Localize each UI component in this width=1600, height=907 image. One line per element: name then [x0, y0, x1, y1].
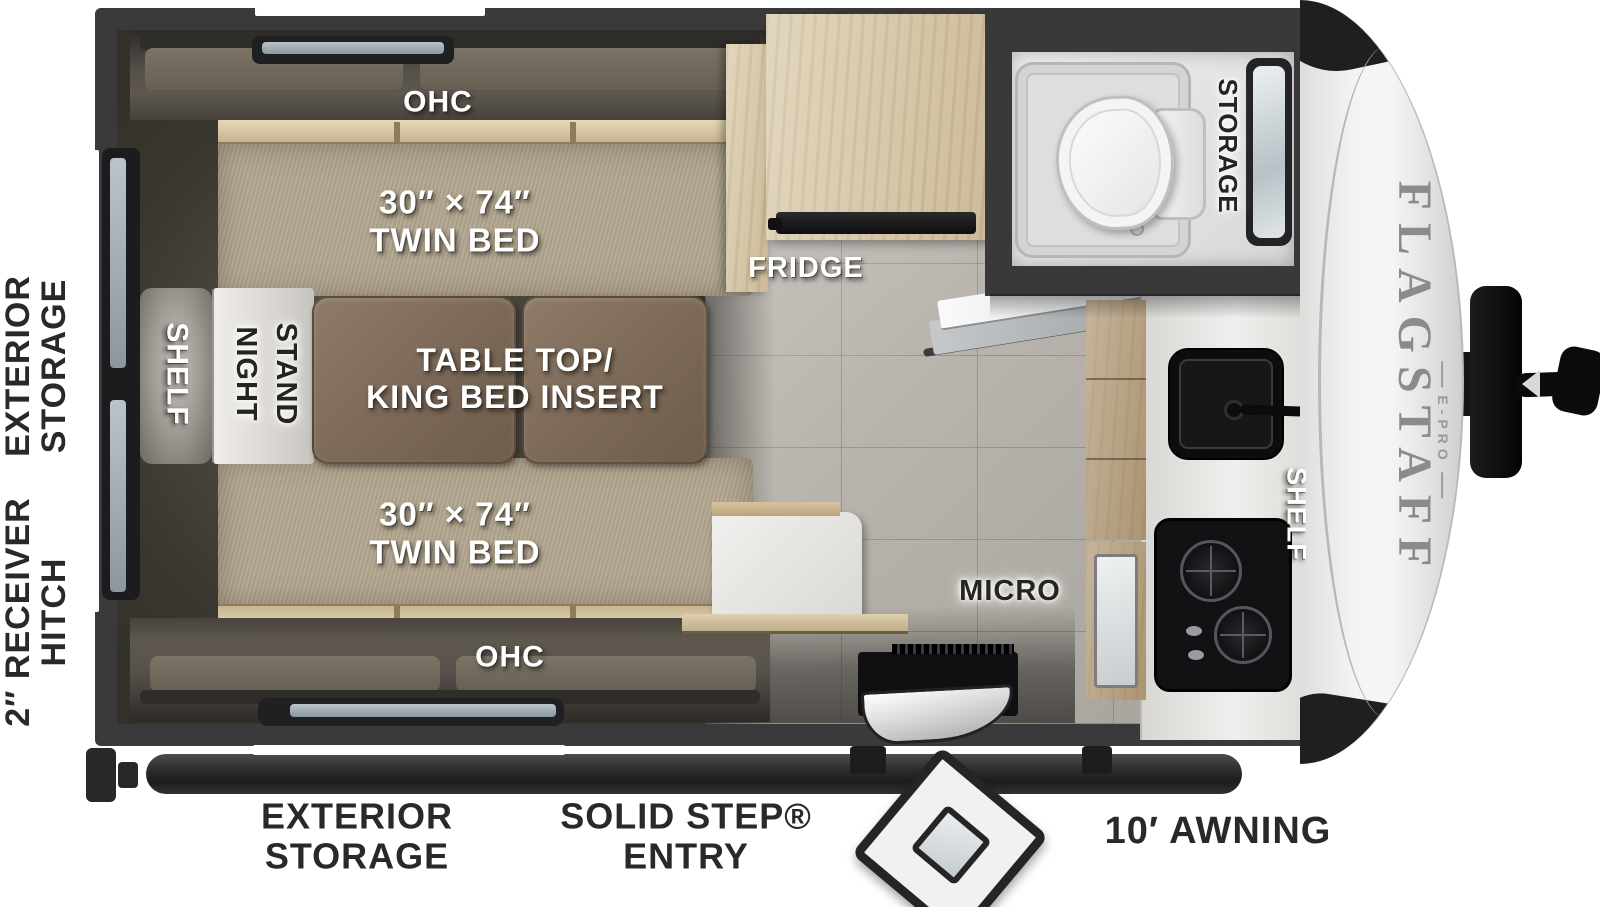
- label-twin-bed-bottom: 30″ × 74″ TWIN BED: [369, 496, 540, 573]
- stove-knob-2: [1188, 650, 1204, 660]
- stove-burner-small: [1214, 606, 1272, 664]
- awning-bracket-right: [1082, 746, 1112, 774]
- floorplan-canvas: OHC 30″ × 74″ TWIN BED TABLE TOP/ KING B…: [0, 0, 1600, 907]
- label-receiver-hitch: 2″ RECEIVER HITCH: [0, 497, 72, 726]
- label-ohc-bottom: OHC: [475, 641, 545, 676]
- hitch-jack-body: [1470, 286, 1522, 478]
- left-exterior-hatch-strip: [87, 150, 99, 612]
- label-fridge: FRIDGE: [748, 252, 864, 286]
- kitchen-cabinet-upper: [1086, 300, 1146, 540]
- stove-burner-large: [1180, 540, 1242, 602]
- cap-marker-light-top: [1418, 56, 1427, 65]
- stove-knob-1: [1186, 626, 1202, 636]
- kitchen-cabinet-divider-1: [1086, 378, 1146, 380]
- label-night: NIGHT: [228, 326, 262, 421]
- label-shelf-bedroom: SHELF: [159, 322, 194, 425]
- awning-bracket-left: [850, 746, 886, 774]
- bed-rail-top-notch-2: [570, 122, 576, 142]
- fridge-hinge-strip: [776, 212, 976, 234]
- label-exterior-storage-side: EXTERIOR STORAGE: [0, 275, 72, 457]
- ohc-top-cushion-right: [420, 48, 755, 90]
- top-exterior-hatch-strip: [255, 5, 485, 16]
- rear-bumper-vertical: [86, 748, 116, 802]
- hitch-jack-knob: [1550, 344, 1600, 418]
- label-twin-bed-top: 30″ × 74″ TWIN BED: [369, 184, 540, 261]
- awning-bar: [146, 754, 1242, 794]
- fridge-cabinet: [766, 14, 988, 240]
- kitchen-cabinet-glass-door: [1094, 554, 1138, 688]
- label-shelf-kitchen: SHELF: [1280, 467, 1311, 561]
- entry-bench: [712, 512, 862, 620]
- label-bath-storage: STORAGE: [1213, 78, 1243, 213]
- entry-wood-shelf: [682, 614, 908, 634]
- bed-rail-top: [218, 120, 753, 144]
- ohc-bottom-cushion-left: [150, 656, 440, 692]
- label-solid-step-entry: SOLID STEP® ENTRY: [560, 796, 812, 875]
- label-table-king-insert: TABLE TOP/ KING BED INSERT: [366, 342, 664, 416]
- top-window-glass: [262, 42, 444, 54]
- bathroom-wall-floor-shadow: [990, 294, 1310, 318]
- label-exterior-storage-bottom: EXTERIOR STORAGE: [261, 796, 453, 875]
- bottom-window-glass: [290, 704, 556, 717]
- fridge-hinge-nub: [768, 218, 782, 230]
- bath-storage-door-glass: [1253, 66, 1285, 238]
- kitchen-cabinet-divider-2: [1086, 458, 1146, 460]
- label-awning: 10′ AWNING: [1105, 809, 1332, 853]
- entry-bench-wood-cap: [712, 502, 840, 516]
- label-stand: STAND: [268, 323, 302, 426]
- cap-marker-light-bottom: [1404, 696, 1413, 705]
- bottom-exterior-hatch-strip: [253, 745, 565, 755]
- rear-bumper-arm: [118, 762, 138, 788]
- microwave-vents: [892, 644, 1014, 654]
- brand-epro: E-PRO: [1435, 353, 1451, 506]
- brand-flagstaff: FLAGSTAFF: [1386, 181, 1442, 580]
- left-window-glass-upper: [110, 158, 126, 368]
- label-micro: MICRO: [959, 575, 1061, 609]
- left-window-glass-lower: [110, 400, 126, 592]
- label-ohc-top: OHC: [403, 86, 473, 121]
- bed-rail-top-notch-1: [394, 122, 400, 142]
